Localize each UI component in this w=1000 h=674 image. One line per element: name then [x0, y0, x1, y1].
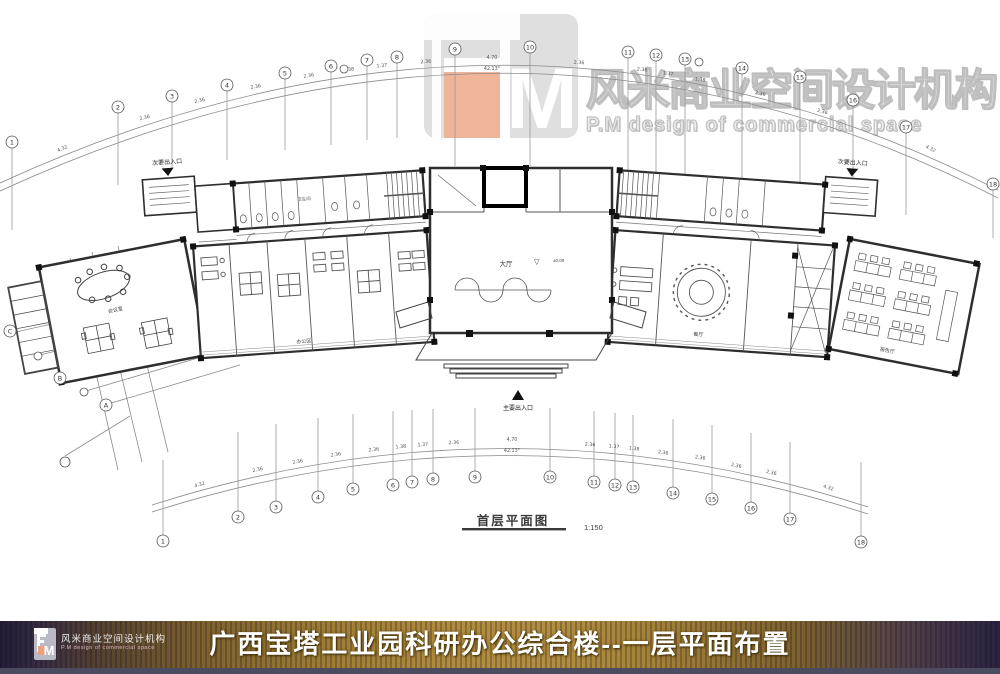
dim: 4.32	[822, 484, 834, 493]
footer-banner: 广西宝塔工业园科研办公综合楼--一层平面布置 M 风米商业空间设计机构 P.M …	[0, 621, 1000, 668]
floor-plan: 4.32 2.36 2.36 2.36 2.36 1.38 1.37 2.36 …	[0, 0, 1000, 620]
dim: 2.36	[730, 462, 742, 470]
dim: 1.37	[376, 63, 387, 70]
dim: 1.37	[417, 442, 428, 449]
axis-bottom: 16	[747, 505, 755, 513]
dim: 2.36	[585, 442, 596, 449]
footer-logo-cn: 风米商业空间设计机构	[61, 634, 166, 645]
dim: 4.32	[924, 144, 936, 154]
page: M 风米商业空间设计机构 P.M design of commercial sp…	[0, 0, 1000, 674]
footer-logo-en: P.M design of commercial space	[61, 645, 166, 652]
dim: 2.36	[657, 449, 668, 456]
room-label-office: 办公区	[296, 337, 311, 345]
entrance-arrow-icon	[846, 168, 859, 177]
dim: 4.70	[507, 437, 518, 443]
axis-bottom: 15	[708, 496, 716, 504]
dim: 42.13°	[484, 66, 500, 72]
main-entrance-label: 主要出入口	[503, 404, 533, 412]
axis-top: 2	[116, 104, 120, 112]
main-entrance-arrow-icon	[512, 390, 524, 400]
axis-bottom: 12	[611, 482, 619, 490]
dim: 4.70	[487, 55, 498, 61]
dim: 1.38	[628, 445, 639, 452]
entrance-arrow-icon	[162, 168, 175, 177]
axis-top: 9	[453, 46, 457, 54]
axis-top: 7	[365, 57, 369, 65]
dim: 2.36	[574, 60, 585, 67]
axis-left: C	[8, 328, 13, 336]
dim: 1.37	[609, 444, 620, 451]
axis-top: 6	[329, 63, 333, 71]
axis-bottom: 18	[857, 539, 865, 547]
dim: 4.32	[56, 144, 68, 154]
dim: 2.36	[139, 114, 151, 123]
axis-top: 18	[989, 181, 997, 189]
axis-top: 1	[10, 139, 14, 147]
axis-top: 4	[225, 82, 229, 90]
axis-top: 5	[283, 70, 287, 78]
dim: 2.36	[194, 97, 206, 105]
dim: 2.36	[303, 72, 314, 80]
dim: 2.36	[368, 446, 379, 453]
dim: 2.36	[250, 83, 262, 91]
central-lobby: 主要出入口 大厅 ▽ ±0.00	[396, 165, 646, 412]
axis-top: 14	[738, 65, 746, 73]
axis-left: B	[58, 375, 62, 383]
axis-top: 8	[395, 54, 399, 62]
dim: 1.38	[694, 76, 705, 83]
level-marker-icon: ▽	[534, 259, 540, 266]
fm-logo-small-icon: M	[34, 628, 56, 660]
dim: 2.36	[448, 440, 459, 447]
dim: 2.36	[637, 67, 648, 74]
axis-top: 16	[849, 97, 857, 105]
axis-bottom: 10	[546, 474, 554, 482]
axis-top: 10	[526, 44, 534, 52]
secondary-entrance-label-left: 次要出入口	[152, 157, 183, 167]
axis-bottom: 3	[274, 504, 278, 512]
axis-bottom: 17	[786, 516, 794, 524]
dim: 2.36	[694, 454, 706, 462]
axis-bottom: 8	[431, 476, 435, 484]
axis-top: 11	[624, 49, 632, 57]
axis-bottom: 7	[410, 479, 414, 487]
plan-caption: 首层平面图 1:150	[462, 513, 603, 532]
caption-underline	[462, 528, 566, 530]
dim: 1.37	[662, 70, 673, 77]
axis-top: 12	[652, 52, 660, 60]
dim: 1.38	[395, 444, 406, 451]
dim: 2.36	[292, 458, 304, 466]
dim: 2.36	[765, 469, 777, 477]
right-outer-wing: 报告厅	[825, 235, 980, 377]
caption-title: 首层平面图	[477, 513, 550, 528]
dim: 4.32	[194, 481, 206, 490]
caption-scale: 1:150	[584, 523, 603, 532]
footer-logo: M 风米商业空间设计机构 P.M design of commercial sp…	[34, 628, 166, 660]
elevator	[484, 168, 526, 206]
axis-bottom: 2	[236, 514, 240, 522]
room-label-lobby: 大厅	[500, 259, 514, 268]
axis-top: 15	[796, 74, 804, 82]
axis-bottom: 6	[391, 482, 395, 490]
footer-strip	[0, 668, 1000, 674]
left-outer-wing: 会议室	[5, 236, 209, 392]
axis-bottom: 4	[316, 494, 320, 502]
dim: 2.36	[330, 451, 341, 459]
dim: 42.13°	[504, 448, 520, 454]
axis-top: 13	[681, 56, 689, 64]
axis-bottom: 11	[590, 479, 598, 487]
dim: 2.36	[252, 466, 264, 474]
footer-logo-letter: M	[44, 643, 55, 658]
room-label-dining: 餐厅	[693, 331, 703, 339]
axis-bottom: 14	[669, 490, 677, 498]
level-value: ±0.00	[553, 258, 565, 263]
axis-bottom: 9	[473, 474, 477, 482]
axis-bottom: 13	[629, 484, 637, 492]
axis-bottom: 1	[161, 538, 165, 546]
axis-top: 3	[170, 93, 174, 101]
axis-left: A	[104, 402, 109, 410]
dim: 2.36	[420, 59, 431, 66]
axis-bottom: 5	[351, 486, 355, 494]
axis-top: 17	[902, 124, 910, 132]
